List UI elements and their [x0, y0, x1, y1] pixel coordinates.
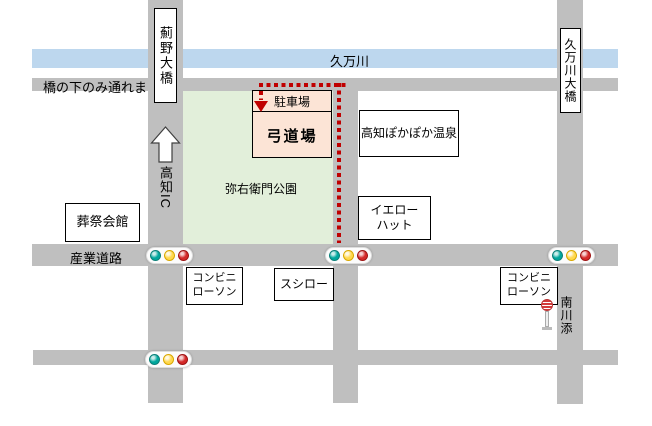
yellow-light-icon [343, 250, 354, 261]
red-light-icon [178, 250, 189, 261]
access-map: 久万川 橋の下のみ通れます 産業道路 弥右衛門公園 薊野大橋 久万川大橋 高知I… [0, 0, 652, 426]
route-line-vertical [337, 83, 341, 243]
route-line-stub [259, 91, 263, 100]
river-label: 久万川 [330, 51, 369, 70]
onsen-label: 高知ぽかぽか温泉 [361, 126, 457, 141]
lawson-left-label-line2: ローソン [193, 286, 237, 300]
sushiro-label: スシロー [280, 277, 328, 292]
red-light-icon [580, 250, 591, 261]
dojo-label: 弓道場 [253, 112, 331, 158]
traffic-light-sangyo-east [548, 247, 595, 264]
red-light-icon [177, 354, 188, 365]
kumangawa-bridge-label: 久万川大橋 [560, 28, 581, 113]
green-light-icon [329, 250, 340, 261]
kochi-ic-label: 高知IC [156, 166, 175, 209]
route-line-horizontal [259, 83, 346, 87]
lawson-right-label-line2: ローソン [507, 286, 551, 300]
yellow-hat-label-line1: イエロー [371, 203, 419, 218]
azono-bridge-label: 薊野大橋 [154, 8, 177, 103]
green-light-icon [149, 354, 160, 365]
building-onsen: 高知ぽかぽか温泉 [359, 110, 459, 157]
yellow-light-icon [566, 250, 577, 261]
red-light-icon [357, 250, 368, 261]
building-sushiro: スシロー [274, 268, 334, 301]
traffic-light-sangyo-west [146, 247, 193, 264]
traffic-light-sangyo-center [325, 247, 372, 264]
yellow-light-icon [163, 354, 174, 365]
bus-stop-base [542, 327, 552, 330]
kumangawa-bridge-text: 久万川大橋 [562, 38, 579, 103]
bus-stop-icon [541, 299, 553, 330]
bridge-note-label: 橋の下のみ通れます [43, 77, 160, 96]
building-funeral-hall: 葬祭会館 [65, 203, 140, 242]
sangyo-road-label: 産業道路 [70, 248, 122, 267]
yellow-hat-label-line2: ハット [376, 218, 412, 233]
yellow-light-icon [164, 250, 175, 261]
azono-bridge-text: 薊野大橋 [156, 26, 175, 86]
route-arrow-down-icon [254, 101, 268, 112]
lawson-right-label-line1: コンビニ [507, 272, 551, 286]
green-light-icon [552, 250, 563, 261]
road-bottom [33, 350, 618, 365]
bus-stop-name-label: 南川添 [558, 296, 575, 335]
direction-up-arrow-icon [150, 126, 181, 163]
park-label: 弥右衛門公園 [206, 180, 316, 197]
river-kumagawa [32, 49, 618, 68]
building-lawson-left: コンビニ ローソン [186, 267, 243, 305]
bus-stop-sign-icon [541, 299, 553, 311]
funeral-hall-label: 葬祭会館 [76, 214, 128, 230]
green-light-icon [150, 250, 161, 261]
bus-stop-pole [545, 311, 549, 327]
lawson-left-label-line1: コンビニ [193, 272, 237, 286]
traffic-light-bottom [145, 351, 192, 368]
building-yellow-hat: イエロー ハット [358, 196, 431, 240]
